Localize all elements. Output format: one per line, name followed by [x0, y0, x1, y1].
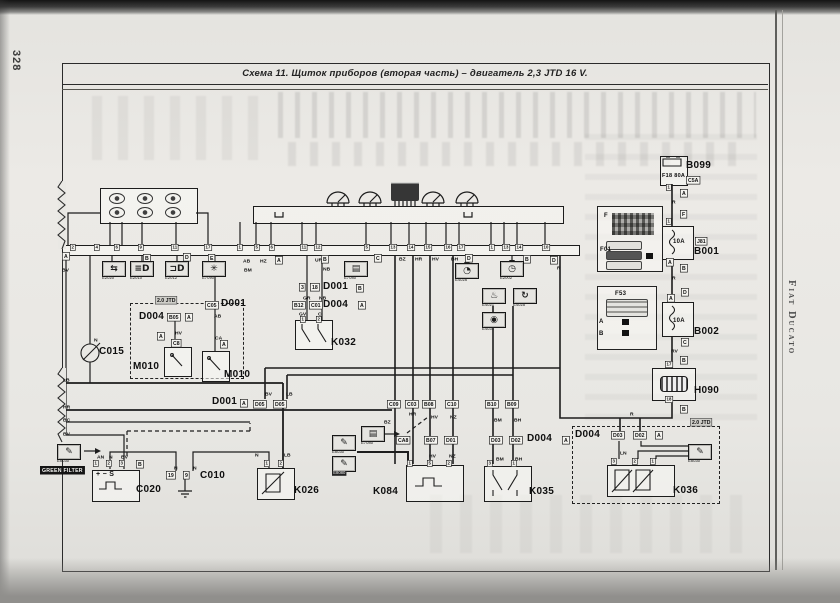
scan-edge-left: [0, 0, 10, 603]
fuse-marker: [622, 319, 629, 325]
fuse-b099: [660, 156, 688, 186]
warning-lamp-icon: [109, 207, 125, 218]
fusebox-inset-bottom: [597, 286, 657, 350]
margin-rule: [782, 10, 783, 570]
title-divider: [62, 89, 768, 90]
fusebox-grid-icon: [612, 213, 654, 235]
warning-lamp-icon: [137, 193, 153, 204]
component-m010-left: [164, 347, 192, 377]
fusebox-inset-top: [597, 206, 663, 272]
warning-lamp-icon: [165, 193, 181, 204]
warning-lamp-cluster: [100, 188, 198, 224]
component-c020: [92, 470, 140, 502]
connector-h090: [652, 368, 696, 401]
gauges-bus-bar: [253, 206, 564, 224]
fuse-marker: [646, 253, 653, 259]
relay-icon: [606, 299, 648, 317]
connector-icon: [660, 376, 688, 392]
fuse-b001: [662, 226, 694, 260]
component-k084: [406, 465, 464, 502]
fuse-b002: [662, 302, 694, 337]
book-title: Fiat Ducato: [786, 280, 797, 355]
warning-lamp-icon: [109, 193, 125, 204]
warning-lamp-icon: [165, 207, 181, 218]
fuse-marker: [622, 330, 629, 336]
margin-rule: [775, 10, 777, 570]
component-m010-right: [202, 351, 230, 382]
component-k036: [607, 465, 675, 497]
scan-edge-bottom: [0, 558, 840, 603]
warning-lamp-icon: [137, 207, 153, 218]
component-k035: [484, 466, 532, 502]
fuse-slot-icon: [606, 251, 642, 260]
fuse-slot-icon: [606, 241, 642, 250]
schema-title: Схема 11. Щиток приборов (вторая часть) …: [62, 63, 768, 85]
odometer-display-module: [391, 182, 419, 201]
component-k032: [295, 320, 333, 350]
scan-edge-top: [0, 0, 840, 15]
fuse-slot-icon: [606, 261, 642, 270]
component-k026: [257, 468, 295, 500]
page-number: 328: [10, 50, 22, 71]
instrument-connector-strip: [62, 245, 580, 256]
